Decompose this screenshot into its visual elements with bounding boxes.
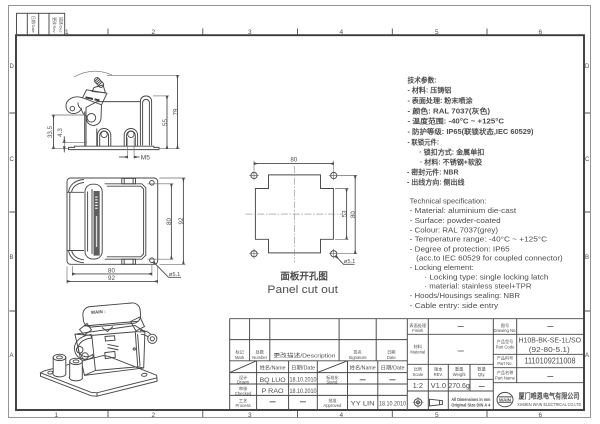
svg-text:1: 1 (55, 412, 59, 419)
svg-text:53: 53 (341, 210, 348, 217)
svg-text:Stand.: Stand. (326, 379, 338, 384)
svg-text:更改描述/Description: 更改描述/Description (274, 352, 336, 360)
svg-text:- Temperature range: -40°C ~ +: - Temperature range: -40°C ~ +125°C (410, 236, 547, 244)
svg-text:- 颜色: RAL 7037(灰色): - 颜色: RAL 7037(灰色) (408, 106, 491, 115)
svg-text:4: 4 (340, 412, 344, 419)
svg-text:姓名/Name: 姓名/Name (350, 365, 376, 372)
svg-text:Finish: Finish (412, 328, 424, 333)
svg-text:18.10.2010: 18.10.2010 (290, 378, 318, 384)
svg-text:Material: Material (410, 350, 425, 355)
svg-text:厦门唯恩电气有限公司: 厦门唯恩电气有限公司 (518, 392, 580, 401)
svg-text:Number: Number (252, 355, 267, 360)
svg-text:日期/Date: 日期/Date (31, 16, 36, 33)
svg-text:80: 80 (166, 218, 173, 225)
svg-text:- 表面处理: 粉末喷涂: - 表面处理: 粉末喷涂 (408, 96, 473, 105)
svg-text:80: 80 (290, 157, 297, 164)
svg-text:C: C (585, 157, 590, 163)
svg-text:REV.: REV. (434, 372, 443, 377)
svg-text:P RAO: P RAO (262, 388, 284, 395)
svg-text:270.6g: 270.6g (448, 381, 470, 390)
svg-text:· 材料: 不锈钢+软胶: · 材料: 不锈钢+软胶 (420, 158, 482, 167)
svg-text:YY LIN: YY LIN (351, 401, 375, 408)
svg-text:Weight: Weight (453, 372, 467, 377)
svg-text:H10B-BK-SE-1L/SO: H10B-BK-SE-1L/SO (519, 336, 582, 345)
svg-text:B: B (10, 255, 14, 261)
svg-text:· Locking type: single locking: · Locking type: single locking latch (424, 275, 548, 282)
svg-text:V1.0: V1.0 (431, 381, 446, 390)
svg-text:18.10.2010: 18.10.2010 (290, 389, 318, 395)
svg-text:- Material: aluminium die-cast: - Material: aluminium die-cast (410, 208, 516, 215)
svg-text:Signature: Signature (349, 355, 368, 360)
svg-text:XIAMEN WAIN ELECTRICAL CO.LTD: XIAMEN WAIN ELECTRICAL CO.LTD (517, 402, 582, 407)
svg-text:4.3: 4.3 (57, 128, 64, 137)
svg-text:- 材料: 压铸铝: - 材料: 压铸铝 (408, 85, 452, 94)
svg-text:- Degree of protection: IP65: - Degree of protection: IP65 (410, 246, 510, 253)
svg-text:- 防护等级: IP65(联锁状态,IEC 60529): - 防护等级: IP65(联锁状态,IEC 60529) (408, 127, 534, 136)
svg-text:- 密封元件: NBR: - 密封元件: NBR (407, 168, 459, 177)
svg-text:Checked: Checked (235, 391, 252, 396)
svg-text:- Hoods/Housings sealing: NBR: - Hoods/Housings sealing: NBR (410, 293, 520, 300)
svg-text:- Surface: powder-coated: - Surface: powder-coated (410, 218, 501, 225)
svg-text:- 出线方向: 侧出线: - 出线方向: 侧出线 (407, 178, 465, 187)
svg-text:Technical specification:: Technical specification: (410, 198, 487, 205)
svg-text:1: 1 (65, 29, 69, 36)
svg-text:Panel cut out: Panel cut out (267, 284, 338, 296)
svg-text:Part Code: Part Code (496, 345, 516, 350)
svg-text:· material: stainless steel+TP: · material: stainless steel+TPR (424, 284, 531, 291)
svg-text:ø5.1: ø5.1 (169, 272, 181, 278)
svg-text:· 锁扣方式: 金属单扣: · 锁扣方式: 金属单扣 (419, 148, 484, 157)
svg-text:M5: M5 (141, 155, 150, 162)
svg-text:- Locking element:: - Locking element: (410, 265, 474, 272)
svg-text:(acc.to IEC 60529 for coupled: (acc.to IEC 60529 for coupled connector) (416, 256, 563, 263)
svg-text:更改/Rev: 更改/Rev (52, 17, 57, 33)
svg-text:3: 3 (248, 412, 252, 419)
svg-text:- Colour: RAL 7037(grey): - Colour: RAL 7037(grey) (410, 227, 498, 234)
svg-text:3: 3 (248, 29, 252, 36)
svg-text:描述/Des: 描述/Des (58, 17, 63, 33)
svg-text:1:2: 1:2 (413, 381, 423, 390)
svg-text:2: 2 (152, 29, 156, 36)
svg-text:日期/Date: 日期/Date (381, 366, 405, 372)
svg-text:Approved: Approved (323, 403, 342, 408)
svg-text:WAIN :: WAIN : (91, 309, 107, 315)
svg-text:Drawn: Drawn (237, 379, 250, 384)
svg-text:2: 2 (152, 412, 156, 419)
svg-text:D: D (585, 64, 590, 70)
svg-text:80: 80 (108, 268, 115, 275)
svg-text:WAIN: WAIN (499, 397, 512, 402)
svg-text:A: A (10, 353, 14, 359)
svg-text:A: A (585, 353, 589, 359)
svg-text:技术参数:: 技术参数: (408, 76, 437, 85)
svg-text:C: C (10, 157, 15, 163)
svg-text:33.5: 33.5 (47, 125, 54, 138)
svg-text:Part Name: Part Name (495, 376, 516, 381)
svg-text:Drawing No.: Drawing No. (493, 328, 516, 333)
svg-text:80: 80 (350, 211, 357, 218)
svg-text:6: 6 (539, 412, 543, 419)
svg-text:Part No.: Part No. (497, 361, 512, 366)
svg-text:1110109211008: 1110109211008 (525, 356, 576, 366)
svg-text:(92-80-5.1): (92-80-5.1) (529, 347, 570, 354)
svg-text:- 联锁元件:: - 联锁元件: (408, 137, 440, 146)
svg-text:6: 6 (539, 29, 543, 36)
svg-text:B: B (585, 255, 589, 261)
svg-text:- 温度范围: -40°C ~ +125°C: - 温度范围: -40°C ~ +125°C (408, 116, 505, 125)
svg-text:5: 5 (435, 412, 439, 419)
svg-text:5: 5 (435, 29, 439, 36)
svg-text:姓名/Name: 姓名/Name (260, 365, 286, 372)
svg-text:Process: Process (236, 403, 251, 408)
svg-text:92: 92 (178, 217, 185, 224)
svg-text:BQ LUO: BQ LUO (260, 377, 286, 384)
svg-text:D: D (10, 64, 15, 70)
svg-text:ø5.1: ø5.1 (344, 259, 356, 265)
svg-text:79: 79 (173, 108, 180, 115)
svg-text:日期/Date: 日期/Date (291, 366, 315, 372)
svg-text:92: 92 (108, 275, 115, 282)
svg-text:Scale: Scale (413, 372, 424, 377)
svg-text:55: 55 (162, 119, 169, 126)
svg-text:Original Size DIN A 4: Original Size DIN A 4 (451, 403, 490, 408)
svg-text:4: 4 (340, 29, 344, 36)
svg-text:面板开孔图: 面板开孔图 (280, 271, 328, 283)
svg-text:Date: Date (387, 355, 397, 360)
svg-text:Qty.: Qty. (478, 372, 485, 377)
svg-text:18.10.2010: 18.10.2010 (379, 401, 407, 407)
svg-text:Mark: Mark (235, 355, 245, 360)
svg-text:All Dimensions in mm: All Dimensions in mm (451, 397, 490, 402)
svg-text:- Cable entry: side entry: - Cable entry: side entry (410, 303, 499, 310)
